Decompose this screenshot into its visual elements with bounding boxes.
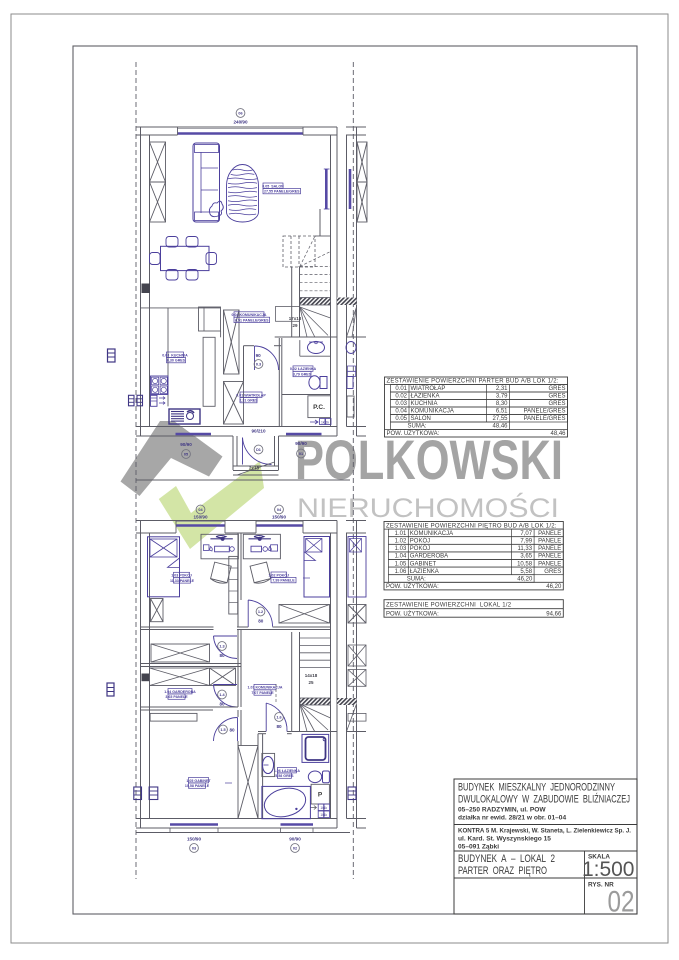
svg-text:GRES: GRES [548,394,565,400]
svg-text:1.3: 1.3 [219,645,224,649]
svg-text:BUDYNEK A – LOKAL 2: BUDYNEK A – LOKAL 2 [458,853,555,865]
svg-text:150/90: 150/90 [187,837,201,842]
svg-text:05–091 Ząbki: 05–091 Ząbki [458,843,499,850]
svg-text:1.06: 1.06 [395,569,407,575]
svg-text:1.05 GABINET: 1.05 GABINET [186,779,211,783]
svg-text:POLKOWSKI: POLKOWSKI [295,428,563,491]
svg-text:3,79 GRES: 3,79 GRES [293,373,312,377]
svg-text:02: 02 [293,847,297,851]
svg-text:ZESTAWIENIE POWIERZCHNI PIĘTRO: ZESTAWIENIE POWIERZCHNI PIĘTRO BUD A/B L… [386,523,557,529]
svg-text:14x18: 14x18 [305,673,318,678]
svg-text:1.02 POKÓJ: 1.02 POKÓJ [268,572,289,577]
svg-text:11,33 PANELE: 11,33 PANELE [170,579,195,583]
svg-text:7,07: 7,07 [520,531,532,537]
svg-text:PARTER ORAZ PIĘTRO: PARTER ORAZ PIĘTRO [458,865,547,877]
svg-text:0.02 ŁAZIENKA: 0.02 ŁAZIENKA [290,367,317,371]
svg-text:48,46: 48,46 [550,431,566,437]
svg-text:P: P [318,792,323,799]
svg-text:17x18: 17x18 [289,316,302,321]
svg-text:46,20: 46,20 [546,584,562,590]
svg-text:1.02: 1.02 [395,539,407,545]
svg-text:80: 80 [229,728,235,733]
svg-text:PANELE: PANELE [538,546,561,552]
svg-text:1.01 KOMUNIKACJA: 1.01 KOMUNIKACJA [248,686,283,690]
svg-text:KONTRA 5 M. Krajewski, W. Stan: KONTRA 5 M. Krajewski, W. Staneta, L. Zi… [458,828,631,835]
svg-text:2,31: 2,31 [496,386,508,392]
svg-text:0.04 KOMUNIKACJA: 0.04 KOMUNIKACJA [232,313,267,317]
svg-text:80: 80 [276,724,282,729]
svg-text:1k1k: 1k1k [320,806,327,810]
svg-text:0.05 SALON: 0.05 SALON [262,184,284,188]
svg-text:46,20: 46,20 [517,577,533,583]
svg-text:1:500: 1:500 [582,858,635,881]
svg-text:1k 1k: 1k 1k [321,421,329,425]
svg-text:ZESTAWIENIE POWIERZCHNI PARTER: ZESTAWIENIE POWIERZCHNI PARTER BUD A/B L… [387,379,559,385]
svg-text:PANELE: PANELE [538,561,561,567]
svg-text:2x18: 2x18 [249,466,260,471]
svg-text:1.04: 1.04 [395,554,407,560]
svg-text:29: 29 [292,323,298,328]
svg-text:3,65: 3,65 [520,554,532,560]
svg-text:5,58 GRES: 5,58 GRES [275,774,294,778]
svg-text:90/90: 90/90 [295,441,307,446]
svg-text:POKÓJ: POKÓJ [410,538,430,545]
svg-text:1.01: 1.01 [395,531,407,537]
svg-text:11,33: 11,33 [518,546,533,552]
svg-text:05: 05 [184,453,188,457]
svg-text:7,99 PANELE: 7,99 PANELE [272,579,295,583]
svg-text:1.6: 1.6 [276,716,281,720]
svg-text:0.01 WIATROŁAP: 0.01 WIATROŁAP [236,393,266,397]
svg-text:80: 80 [219,702,225,707]
svg-text:5,58: 5,58 [520,569,532,575]
svg-text:03: 03 [192,847,196,851]
svg-text:1.03: 1.03 [395,546,407,552]
svg-text:0.3: 0.3 [256,363,261,367]
svg-text:ŁAZIENKA: ŁAZIENKA [410,569,439,575]
svg-text:PANELE: PANELE [538,554,561,560]
svg-text:SALON: SALON [411,416,431,422]
svg-text:P.C.: P.C. [313,404,325,411]
svg-text:SUMA:: SUMA: [407,424,426,430]
svg-text:KOMUNIKACJA: KOMUNIKACJA [411,409,454,415]
svg-text:8,30: 8,30 [496,401,508,407]
svg-text:GARDEROBA: GARDEROBA [410,554,448,560]
svg-text:90/210: 90/210 [251,429,265,434]
svg-text:POKÓJ: POKÓJ [410,545,430,552]
svg-text:2,31 GRES: 2,31 GRES [239,399,258,403]
svg-text:0.05: 0.05 [395,416,407,422]
svg-text:ŁAZIENKA: ŁAZIENKA [411,394,440,400]
svg-text:90/90: 90/90 [180,442,192,447]
svg-text:10,58: 10,58 [517,561,533,567]
svg-text:PANELE/GRES: PANELE/GRES [524,416,566,422]
svg-text:1.5: 1.5 [220,728,225,732]
svg-text:90/90: 90/90 [289,837,301,842]
svg-text:POW. UŻYTKOWA:: POW. UŻYTKOWA: [386,611,439,618]
svg-text:D1: D1 [256,448,261,452]
svg-text:GRES: GRES [544,569,561,575]
svg-text:POW. UŻYTKOWA:: POW. UŻYTKOWA: [386,583,439,590]
svg-text:02: 02 [608,886,635,919]
svg-text:01: 01 [299,452,303,456]
svg-text:1.05: 1.05 [395,561,407,567]
svg-text:POW. UŻYTKOWA:: POW. UŻYTKOWA: [387,430,440,437]
svg-text:7,99: 7,99 [520,539,532,545]
svg-text:GABINET: GABINET [410,561,437,567]
svg-text:działka nr ewid. 28/21 w obr.: działka nr ewid. 28/21 w obr. 01–04 [458,815,566,822]
svg-text:WIATROŁAP: WIATROŁAP [411,386,446,392]
svg-text:7,07 PANELE: 7,07 PANELE [251,691,274,695]
svg-text:240/90: 240/90 [233,120,247,125]
svg-text:0.02: 0.02 [395,394,407,400]
svg-text:0.01: 0.01 [395,386,407,392]
svg-text:1k1k: 1k1k [320,813,327,817]
svg-text:8,30 GRES: 8,30 GRES [167,359,186,363]
svg-text:NIERUCHOMOŚCI: NIERUCHOMOŚCI [297,491,559,523]
svg-text:1.2: 1.2 [258,610,263,614]
svg-text:3,79: 3,79 [496,394,508,400]
svg-text:80: 80 [219,653,225,658]
svg-text:1.06 ŁAZIENKA: 1.06 ŁAZIENKA [274,769,301,773]
svg-text:94,66: 94,66 [546,612,562,618]
svg-text:27,55 PANELE/GRES: 27,55 PANELE/GRES [264,190,300,194]
svg-text:04: 04 [277,508,282,512]
svg-text:KOMUNIKACJA: KOMUNIKACJA [410,531,453,537]
svg-text:0.04: 0.04 [395,409,407,415]
svg-text:1.4: 1.4 [219,693,225,697]
svg-text:1.04 GARDEROBA: 1.04 GARDEROBA [164,690,196,694]
svg-text:PANELE/GRES: PANELE/GRES [524,409,566,415]
svg-text:150/90: 150/90 [193,515,207,520]
svg-text:48,46: 48,46 [492,424,508,430]
svg-text:10,58 PANELE: 10,58 PANELE [185,784,210,788]
svg-text:PANELE: PANELE [538,539,561,545]
svg-text:27,55: 27,55 [492,416,508,422]
svg-text:3,65 PANELE: 3,65 PANELE [165,695,188,699]
svg-text:PANELE: PANELE [538,531,561,537]
svg-text:05–250 RADZYMIN, ul. POW: 05–250 RADZYMIN, ul. POW [458,807,546,814]
svg-text:80: 80 [258,619,264,624]
svg-text:GRES: GRES [548,401,565,407]
svg-text:ZESTAWIENIE POWIERZCHNI LOKAL: ZESTAWIENIE POWIERZCHNI LOKAL 1/2 [386,603,512,609]
svg-text:0.03 KUCHNIA: 0.03 KUCHNIA [162,353,188,357]
svg-text:6,51: 6,51 [496,409,508,415]
svg-text:1.03 POKÓJ: 1.03 POKÓJ [171,573,192,578]
svg-text:0.03: 0.03 [395,401,407,407]
svg-text:06: 06 [238,112,242,116]
svg-text:SUMA:: SUMA: [407,577,426,583]
svg-text:25: 25 [308,680,314,685]
svg-text:ul. Kard. St. Wyszynskiego 15: ul. Kard. St. Wyszynskiego 15 [458,836,551,843]
svg-text:150/90: 150/90 [272,515,286,520]
svg-text:KUCHNIA: KUCHNIA [411,401,438,407]
svg-text:BUDYNEK MIESZKALNY JEDNORODZ: BUDYNEK MIESZKALNY JEDNORODZINNY [458,782,615,794]
svg-text:90: 90 [256,353,262,358]
svg-text:6,51 PANELE/GRES: 6,51 PANELE/GRES [235,319,269,323]
svg-text:DWULOKALOWY W ZABUDOWIE BLI: DWULOKALOWY W ZABUDOWIE BLIŹNIACZEJ [458,793,630,806]
svg-text:GRES: GRES [548,386,565,392]
